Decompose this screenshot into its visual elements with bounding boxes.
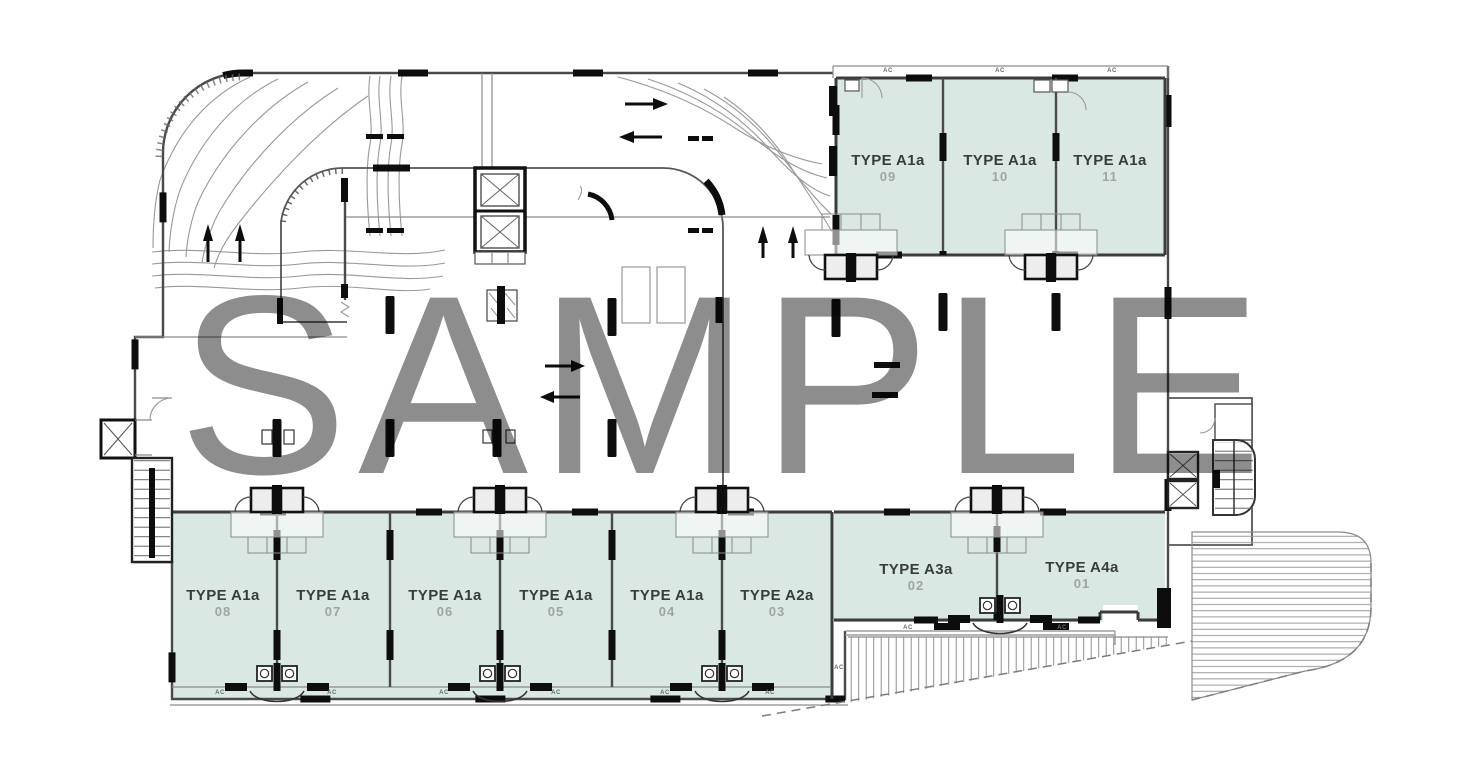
ac-ledge-label: AC: [200, 689, 240, 697]
floor-plan: SAMPLE TYPE A1a 09 TYPE A1a 10 TYPE A1a …: [0, 0, 1477, 761]
ac-ledge-label: AC: [312, 689, 352, 697]
ac-ledge-label: AC: [424, 689, 464, 697]
ac-ledge-label: AC: [888, 624, 928, 632]
central-elevator-core: [475, 168, 685, 324]
driveway-arrows: [203, 98, 900, 403]
ac-ledge-label: AC: [868, 67, 908, 75]
ac-ledge-label: AC: [645, 689, 685, 697]
unit-block-09-11: [836, 78, 1165, 255]
vent-shaft: [657, 267, 685, 323]
floor-plan-drawing: [0, 0, 1477, 761]
door-arc-icon: [588, 194, 612, 220]
elevator-icon: [481, 174, 519, 206]
ac-ledge-label: AC: [819, 664, 859, 672]
elevator-icon: [481, 216, 519, 248]
stair-icon: [132, 458, 172, 562]
elevator-icon: [1168, 452, 1198, 479]
ac-ledge-label: AC: [1042, 624, 1082, 632]
service-shaft: [487, 286, 517, 324]
stair-icon: [1213, 440, 1255, 515]
left-stair-core: [101, 398, 172, 562]
ac-ledge-label: AC: [1092, 67, 1132, 75]
ac-ledge-label: AC: [980, 67, 1020, 75]
vent-shaft: [622, 267, 650, 323]
elevator-icon: [1168, 481, 1198, 508]
ac-ledge-label: AC: [536, 689, 576, 697]
ac-ledge-label: AC: [750, 689, 790, 697]
right-stair-core: [1168, 398, 1255, 545]
